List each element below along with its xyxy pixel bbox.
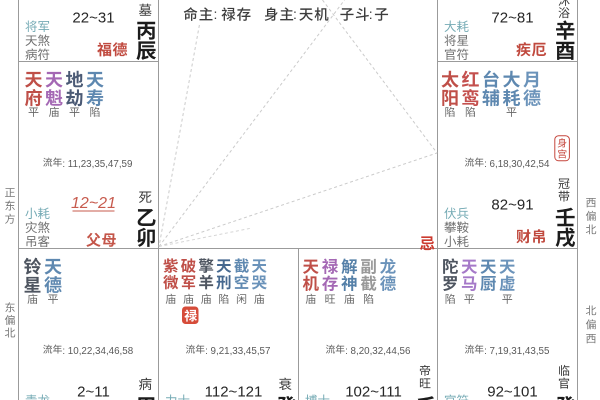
svg-text:22~31: 22~31 xyxy=(72,10,114,27)
svg-text::: : xyxy=(293,6,297,22)
svg-text::: : xyxy=(369,6,373,22)
svg-text:12~21: 12~21 xyxy=(71,195,116,212)
svg-text:: 9,21,33,45,57: : 9,21,33,45,57 xyxy=(205,346,270,357)
svg-text:: 6,18,30,42,54: : 6,18,30,42,54 xyxy=(484,159,550,170)
svg-text:2~11: 2~11 xyxy=(77,384,110,400)
svg-text:: 10,22,34,46,58: : 10,22,34,46,58 xyxy=(62,346,133,357)
svg-text:: 8,20,32,44,56: : 8,20,32,44,56 xyxy=(345,346,411,357)
svg-text:72~81: 72~81 xyxy=(491,10,533,27)
svg-text:92~101: 92~101 xyxy=(487,384,537,400)
svg-text:: 7,19,31,43,55: : 7,19,31,43,55 xyxy=(484,346,550,357)
svg-text:102~111: 102~111 xyxy=(345,384,402,400)
svg-text:112~121: 112~121 xyxy=(205,384,263,400)
svg-text:: 11,23,35,47,59: : 11,23,35,47,59 xyxy=(62,159,132,170)
svg-text:82~91: 82~91 xyxy=(491,197,533,214)
svg-text::: : xyxy=(214,6,218,22)
